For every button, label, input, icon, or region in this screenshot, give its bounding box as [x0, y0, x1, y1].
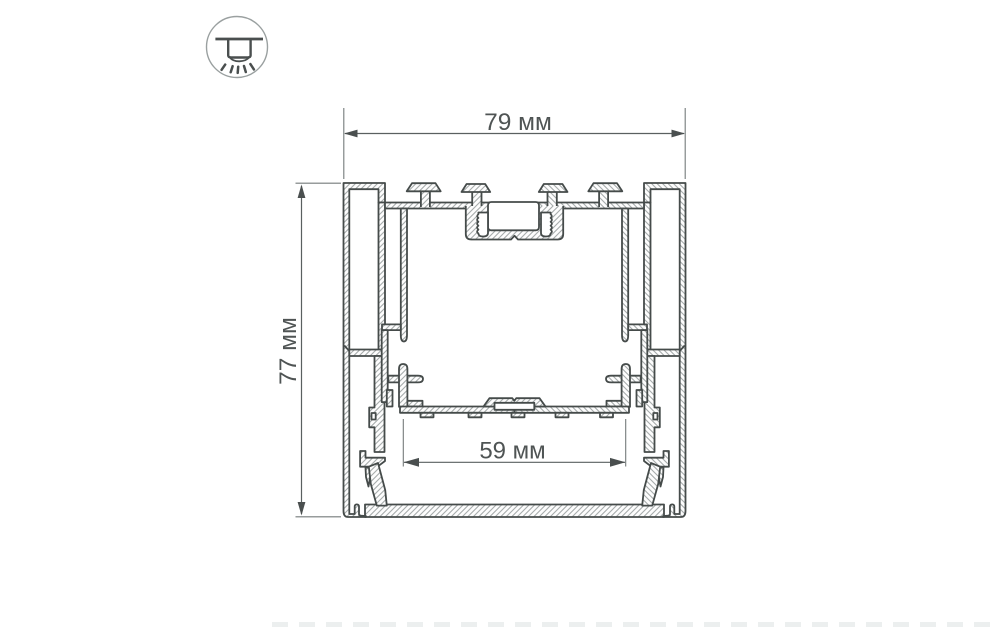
svg-text:77 мм: 77 мм	[275, 317, 302, 385]
svg-text:79 мм: 79 мм	[484, 109, 552, 136]
svg-text:59 мм: 59 мм	[479, 438, 545, 465]
